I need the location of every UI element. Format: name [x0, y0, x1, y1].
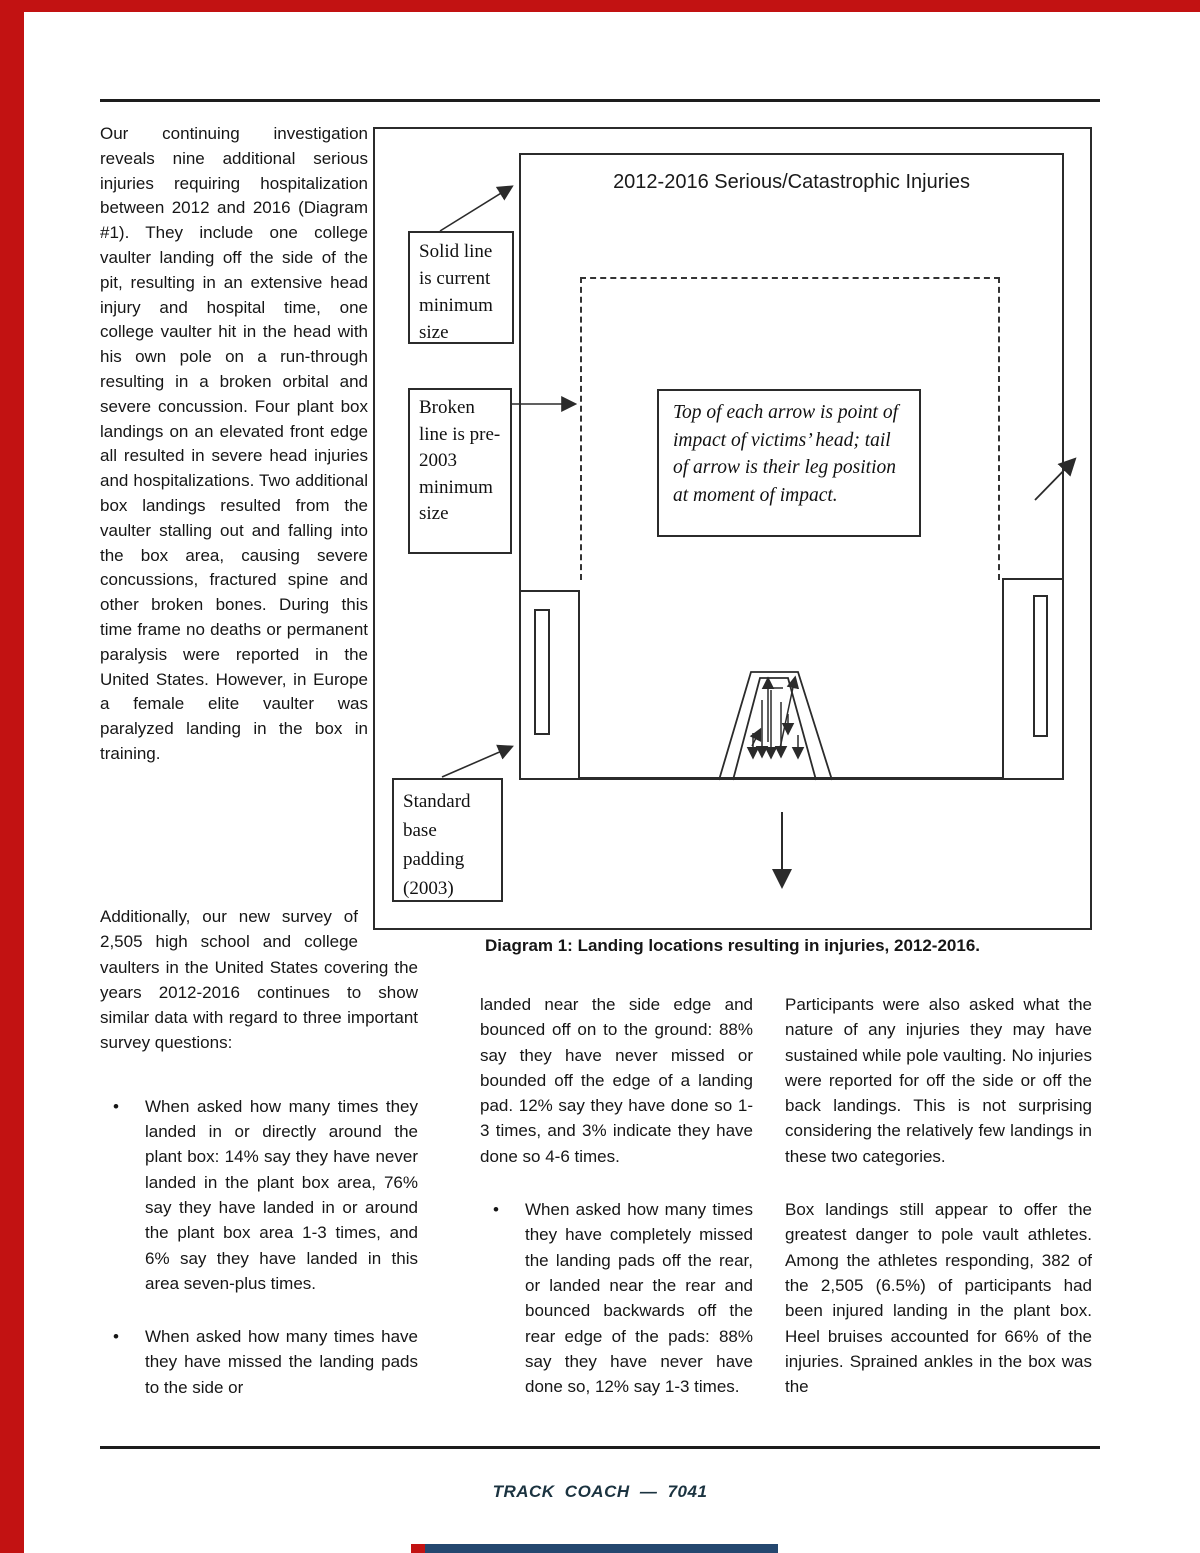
bullet-text: When asked how many times they landed in… — [145, 1094, 418, 1296]
side-landing-continuation: landed near the side edge and bounced of… — [480, 992, 753, 1169]
broken-line-label: Broken line is pre-2003 minimum size — [408, 388, 512, 554]
intro-paragraph: Our continuing investigation reveals nin… — [100, 122, 368, 767]
column-1: Additionally, our new survey of 2,505 hi… — [100, 904, 418, 1400]
column-2: landed near the side edge and bounced of… — [480, 992, 753, 1399]
bottom-rule — [100, 1446, 1100, 1449]
page-footer: TRACK COACH — 7041 — [0, 1482, 1200, 1502]
diagram-1: 2012-2016 Serious/Catastrophic Injuries — [373, 127, 1092, 930]
left-standard-slot — [534, 609, 550, 735]
bottom-strip-blue — [425, 1544, 778, 1553]
diagram-caption: Diagram 1: Landing locations resulting i… — [373, 936, 1092, 956]
right-base-padding — [1002, 578, 1064, 780]
bullet-text: When asked how many times they have comp… — [525, 1197, 753, 1399]
box-landings-paragraph: Box landings still appear to offer the g… — [785, 1197, 1092, 1399]
bullet-item-missed-rear: • When asked how many times they have co… — [480, 1197, 753, 1399]
arrow-explanation-note: Top of each arrow is point of impact of … — [657, 389, 921, 537]
page-edge-left-accent — [0, 0, 24, 1553]
solid-line-label: Solid line is current minimum size — [408, 231, 514, 344]
bullet-text: When asked how many times have they have… — [145, 1324, 418, 1400]
bullet-glyph: • — [100, 1324, 145, 1400]
magazine-page: Our continuing investigation reveals nin… — [0, 0, 1200, 1553]
bullet-glyph: • — [100, 1094, 145, 1296]
bullet-glyph: • — [480, 1197, 525, 1399]
diagram-wrap-spacer — [358, 904, 418, 930]
right-standard-slot — [1033, 595, 1048, 737]
base-label-arrow — [442, 747, 511, 777]
page-edge-top-accent — [0, 0, 1200, 12]
solid-label-arrow — [440, 187, 511, 231]
column-3: Participants were also asked what the na… — [785, 992, 1092, 1399]
left-base-padding — [519, 590, 580, 780]
injury-nature-paragraph: Participants were also asked what the na… — [785, 992, 1092, 1169]
top-rule — [100, 99, 1100, 102]
base-padding-label: Standard base padding (2003) — [392, 778, 503, 902]
survey-intro-wrap: Additionally, our new survey of 2,505 hi… — [100, 904, 418, 1056]
bullet-item-missed-side: • When asked how many times have they ha… — [100, 1324, 418, 1400]
bullet-item-plant-box: • When asked how many times they landed … — [100, 1094, 418, 1296]
bottom-strip-red — [411, 1544, 425, 1553]
diagram-title: 2012-2016 Serious/Catastrophic Injuries — [521, 171, 1062, 194]
